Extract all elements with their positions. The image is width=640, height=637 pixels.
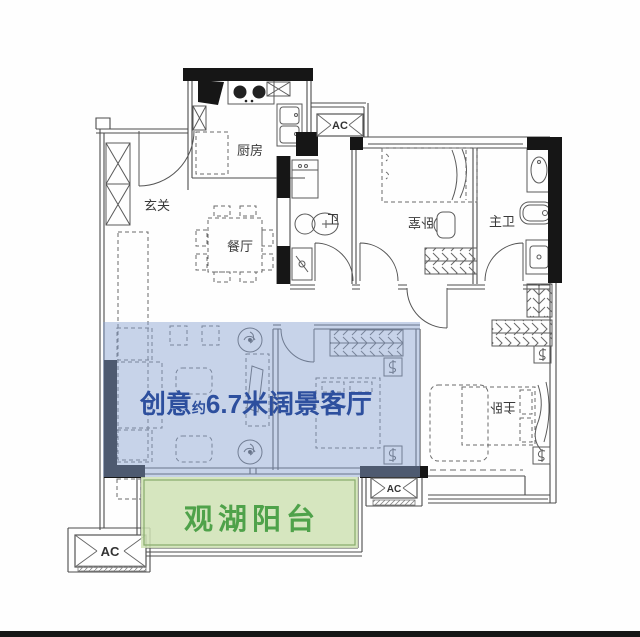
living-room-title: 创意约6.7米阔景客厅: [139, 389, 372, 419]
master-bedroom-label: 主卧: [490, 400, 516, 415]
bedroom-label: 卧室: [408, 215, 434, 230]
ac-unit-bottom-left: AC: [75, 535, 146, 571]
entry-label: 玄关: [144, 198, 170, 213]
svg-text:AC: AC: [101, 544, 120, 559]
kitchen-label: 厨房: [237, 143, 263, 158]
bottom-bar: [0, 631, 640, 637]
svg-text:AC: AC: [387, 484, 401, 495]
floor-plan-image: AC AC AC 玄关 厨房 餐厅 卫 卧室 主卫 主卧 创意约6.7米阔景客厅…: [0, 0, 640, 637]
dining-label: 餐厅: [227, 239, 253, 254]
corridor-wardrobe-vertical: [527, 284, 552, 317]
balcony-title: 观湖阳台: [184, 502, 320, 536]
ac-unit-top: AC: [317, 114, 363, 136]
floor-plan-svg: AC AC AC 玄关 厨房 餐厅 卫 卧室 主卫 主卧 创意约6.7米阔景客厅…: [0, 0, 640, 637]
master-bath-label: 主卫: [489, 214, 515, 229]
bedroom-wardrobe: [425, 248, 477, 274]
svg-text:AC: AC: [332, 120, 348, 132]
master-bedroom-wardrobe: [492, 320, 552, 346]
ac-unit-bottom-right: AC: [371, 478, 417, 505]
bath-label: 卫: [326, 212, 339, 227]
